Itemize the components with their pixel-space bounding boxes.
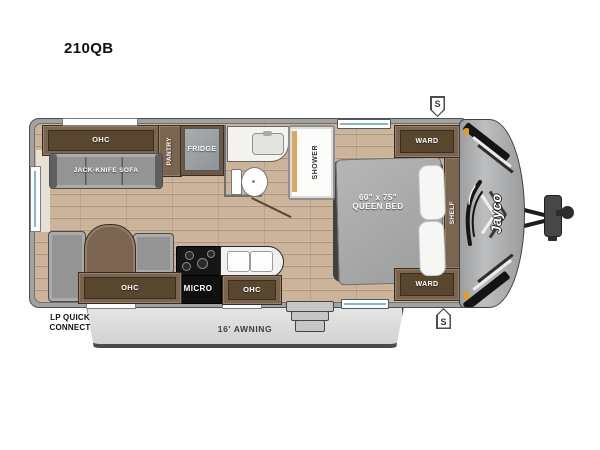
floorplan-canvas: 210QB 16' AWNING LP QUICK CONNECT OHC PA… (0, 0, 600, 450)
faucet-icon (263, 131, 272, 136)
dinette-table (84, 224, 136, 277)
lp-label-line1: LP QUICK (28, 313, 112, 323)
tongue-jack (548, 236, 557, 241)
burner-icon (197, 258, 208, 269)
bed-name-label: QUEEN BED (340, 203, 416, 212)
ohc-dinette-label: OHC (121, 284, 139, 292)
window-bottom-bedroom (341, 299, 389, 309)
cap-accent-swoosh (462, 122, 510, 162)
cabinet-ohc-dinette: OHC (78, 272, 182, 304)
clearance-light (464, 292, 469, 299)
lp-quick-connect-label: LP QUICK CONNECT (28, 313, 112, 334)
page-title: 210QB (64, 40, 114, 57)
bathroom-sink (252, 133, 284, 155)
window-top-bedroom (337, 119, 391, 129)
pantry-label: PANTRY (166, 137, 173, 165)
micro-label: MICRO (184, 285, 213, 294)
dinette-bench-right (133, 233, 174, 274)
entry-step (295, 320, 325, 332)
ward-bottom-label: WARD (416, 281, 439, 289)
stabilizer-badge-bottom: S (436, 308, 451, 329)
sofa-label: JACK-KNIFE SOFA (74, 167, 139, 174)
shower-label: SHOWER (312, 145, 319, 180)
fridge: FRIDGE (180, 125, 224, 176)
stabilizer-badge-top: S (430, 96, 445, 117)
ohc-rear-label: OHC (92, 136, 110, 144)
kitchen-sink-left (227, 251, 250, 272)
awning-label: 16' AWNING (88, 324, 402, 334)
ward-top-label: WARD (416, 138, 439, 146)
front-cap: Jayco (459, 119, 525, 308)
burner-icon (185, 251, 194, 260)
kitchen-counter (220, 246, 284, 278)
jayco-logo-text: Jayco (488, 194, 504, 234)
cabinet-ohc-rear: OHC (42, 125, 160, 156)
sofa-armrest (50, 154, 57, 188)
sofa-armrest (155, 154, 162, 188)
propane-tank (544, 195, 562, 237)
window-rear (30, 166, 41, 232)
clearance-light (464, 128, 469, 135)
bathroom-wall (224, 125, 226, 197)
fridge-label: FRIDGE (188, 146, 217, 154)
toilet-bowl (241, 167, 268, 197)
jack-knife-sofa: JACK-KNIFE SOFA (49, 153, 163, 189)
bed-label: 60" x 75" QUEEN BED (340, 194, 416, 212)
pillow (418, 165, 446, 221)
awning: 16' AWNING (86, 306, 404, 348)
jayco-logo: Jayco (484, 176, 508, 252)
kitchen-sink-right (250, 251, 273, 272)
shelf-label: SHELF (449, 201, 456, 224)
eagle-icon (461, 178, 483, 250)
shower-glass (292, 131, 297, 192)
stove (176, 246, 222, 276)
wardrobe-top: WARD (394, 125, 460, 158)
hitch-ball (561, 206, 574, 219)
pillow (418, 221, 446, 277)
burner-icon (182, 262, 191, 271)
cabinet-ohc-kitchen: OHC (222, 275, 282, 305)
burner-icon (207, 250, 215, 258)
shower: SHOWER (288, 125, 335, 200)
ohc-kitchen-label: OHC (243, 286, 261, 294)
lp-label-line2: CONNECT (28, 323, 112, 333)
window-top-left (62, 118, 138, 126)
